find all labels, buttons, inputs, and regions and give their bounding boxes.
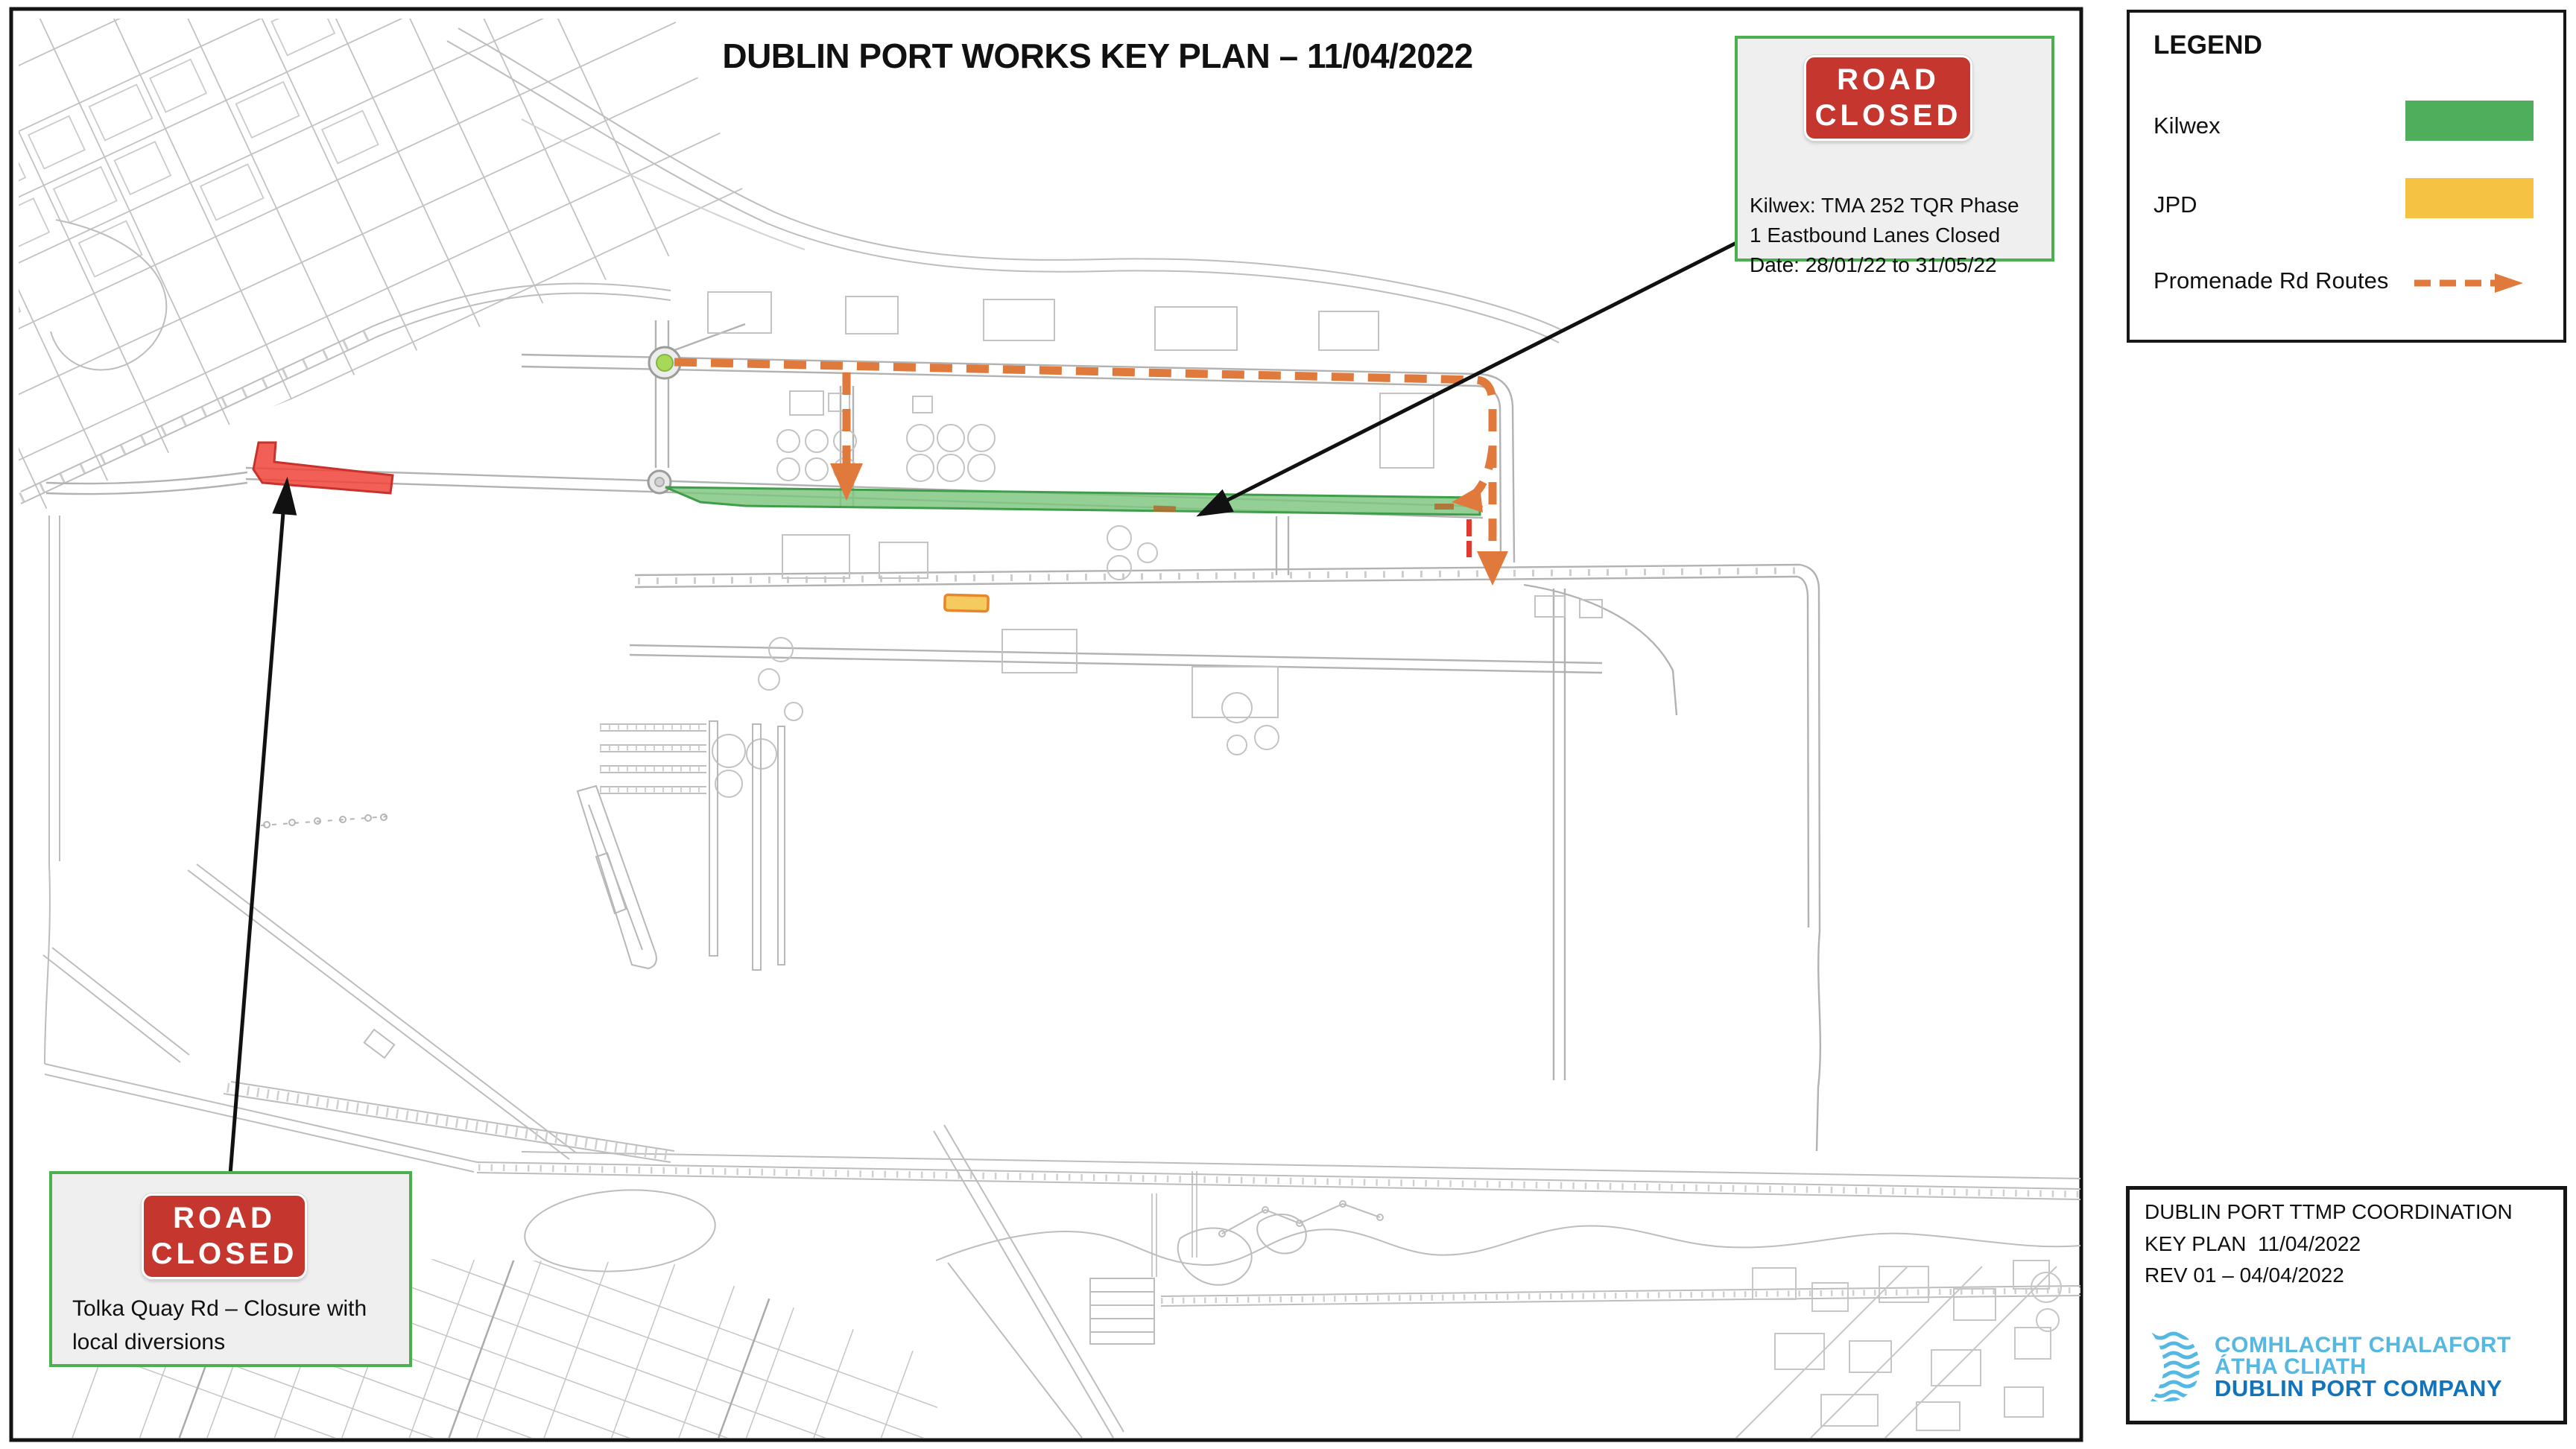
legend-swatch-jpd <box>2405 178 2534 218</box>
kilwex-callout-line: Kilwex: TMA 252 TQR Phase <box>1750 191 2019 221</box>
title-block-line: KEY PLAN 11/04/2022 <box>2145 1232 2361 1256</box>
dpc-logo-line3: DUBLIN PORT COMPANY <box>2215 1377 2511 1399</box>
legend-label-jpd: JPD <box>2153 191 2197 218</box>
dpc-logo-line1: COMHLACHT CHALAFORT <box>2215 1334 2511 1356</box>
legend-title: LEGEND <box>2153 31 2262 60</box>
dpc-wave-d-icon <box>2140 1330 2206 1403</box>
kilwex-closure-callout: ROAD CLOSED Kilwex: TMA 252 TQR Phase 1 … <box>1735 36 2054 261</box>
tolka-callout-line: local diversions <box>72 1325 367 1359</box>
jpd-work-area <box>945 594 989 612</box>
tolka-closure-callout: ROAD CLOSED Tolka Quay Rd – Closure with… <box>49 1171 412 1367</box>
legend: LEGEND Kilwex JPD Promenade Rd Routes <box>2127 10 2566 343</box>
legend-dashed-arrow-icon <box>2413 270 2525 296</box>
title-block: DUBLIN PORT TTMP COORDINATION KEY PLAN 1… <box>2126 1186 2567 1424</box>
kilwex-callout-line: Date: 28/01/22 to 31/05/22 <box>1750 250 2019 280</box>
road-closed-sign: ROAD CLOSED <box>1804 55 1972 141</box>
dpc-logo-line2: ÁTHA CLIATH <box>2215 1356 2511 1377</box>
route-marking <box>1153 506 1176 513</box>
tolka-callout-text: Tolka Quay Rd – Closure with local diver… <box>72 1292 367 1359</box>
legend-swatch-kilwex <box>2405 101 2534 141</box>
kilwex-callout-line: 1 Eastbound Lanes Closed <box>1750 221 2019 250</box>
road-closed-sign-line2: CLOSED <box>1806 98 1970 133</box>
tolka-callout-line: Tolka Quay Rd – Closure with <box>72 1292 367 1325</box>
road-closed-sign: ROAD CLOSED <box>142 1193 307 1279</box>
legend-label-promenade: Promenade Rd Routes <box>2153 267 2388 294</box>
road-closed-sign-line2: CLOSED <box>144 1237 305 1272</box>
legend-label-kilwex: Kilwex <box>2153 112 2221 139</box>
title-block-line: REV 01 – 04/04/2022 <box>2145 1263 2344 1287</box>
route-marking <box>1434 504 1454 510</box>
tolka-quay-roundabout <box>648 471 671 493</box>
road-closed-sign-line1: ROAD <box>144 1201 305 1236</box>
kilwex-callout-text: Kilwex: TMA 252 TQR Phase 1 Eastbound La… <box>1750 191 2019 280</box>
title-block-line: DUBLIN PORT TTMP COORDINATION <box>2145 1200 2513 1224</box>
road-closed-sign-line1: ROAD <box>1806 63 1970 98</box>
dublin-port-company-logo: COMHLACHT CHALAFORT ÁTHA CLIATH DUBLIN P… <box>2140 1330 2557 1404</box>
